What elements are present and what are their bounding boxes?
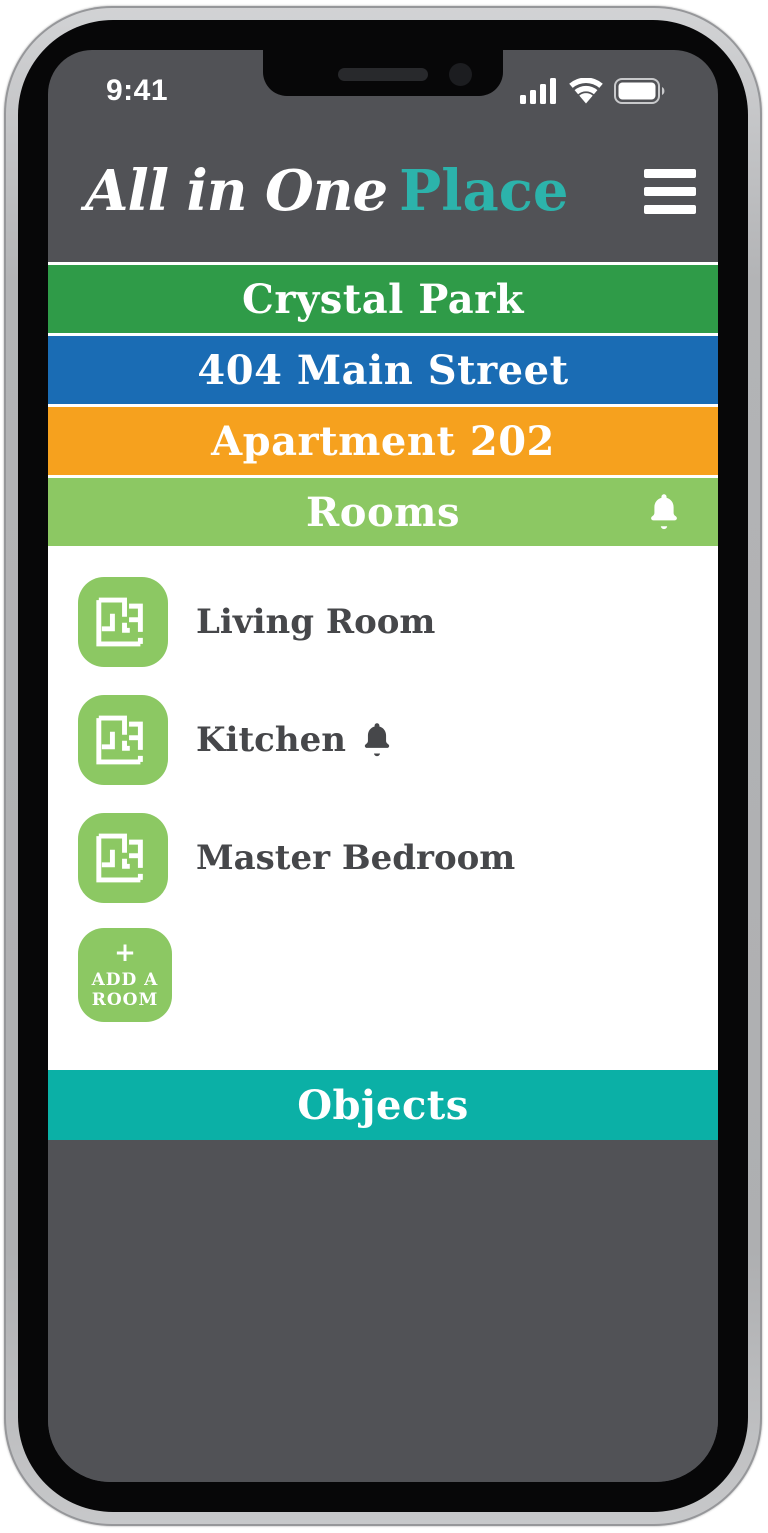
- add-room-label-line2: ROOM: [92, 990, 159, 1010]
- logo-row: All in OnePlace: [85, 158, 698, 224]
- phone-screen: 9:41: [48, 50, 718, 1482]
- nav-bar-objects-label: Objects: [297, 1082, 469, 1129]
- floor-plan-icon: [78, 813, 168, 903]
- phone-notch: [263, 50, 503, 96]
- nav-bar-building-label: Crystal Park: [242, 276, 524, 323]
- rooms-bell-icon[interactable]: [646, 492, 682, 532]
- floor-plan-icon: [78, 577, 168, 667]
- room-label: Master Bedroom: [196, 838, 515, 878]
- nav-bar-apartment[interactable]: Apartment 202: [48, 407, 718, 475]
- nav-bar-apartment-label: Apartment 202: [211, 418, 555, 465]
- wifi-icon: [568, 78, 604, 104]
- nav-stack: Crystal Park 404 Main Street Apartment 2…: [48, 262, 718, 546]
- nav-bar-objects[interactable]: Objects: [48, 1070, 718, 1140]
- room-row-living-room[interactable]: Living Room: [78, 577, 718, 667]
- add-room-button[interactable]: + ADD A ROOM: [78, 928, 172, 1022]
- phone-frame: 9:41: [4, 6, 762, 1526]
- mockup-stage: 9:41: [0, 0, 768, 1533]
- rooms-list: Living Room: [48, 546, 718, 1070]
- front-camera: [449, 63, 472, 86]
- battery-icon: [614, 78, 666, 104]
- add-room-label-line1: ADD A: [92, 970, 159, 990]
- plus-icon: +: [114, 940, 136, 966]
- nav-bar-address[interactable]: 404 Main Street: [48, 336, 718, 404]
- room-alert-bell-icon: [360, 721, 394, 759]
- room-label: Kitchen: [196, 720, 394, 760]
- nav-bar-building[interactable]: Crystal Park: [48, 265, 718, 333]
- nav-bar-rooms[interactable]: Rooms: [48, 478, 718, 546]
- hamburger-menu-icon[interactable]: [644, 169, 698, 214]
- speaker-slot: [338, 68, 428, 81]
- screen-footer: [48, 1140, 718, 1482]
- nav-bar-rooms-label: Rooms: [306, 489, 460, 536]
- room-row-kitchen[interactable]: Kitchen: [78, 695, 718, 785]
- app-logo: All in OnePlace: [85, 158, 569, 224]
- nav-bar-address-label: 404 Main Street: [197, 347, 568, 394]
- status-time: 9:41: [106, 74, 168, 108]
- room-label: Living Room: [196, 602, 435, 642]
- logo-script-text: All in One: [85, 158, 387, 224]
- room-row-master-bedroom[interactable]: Master Bedroom: [78, 813, 718, 903]
- signal-bars-icon: [520, 78, 558, 104]
- logo-accent-text: Place: [399, 158, 568, 224]
- floor-plan-icon: [78, 695, 168, 785]
- phone-bezel: 9:41: [18, 20, 748, 1512]
- status-icons: [520, 78, 666, 104]
